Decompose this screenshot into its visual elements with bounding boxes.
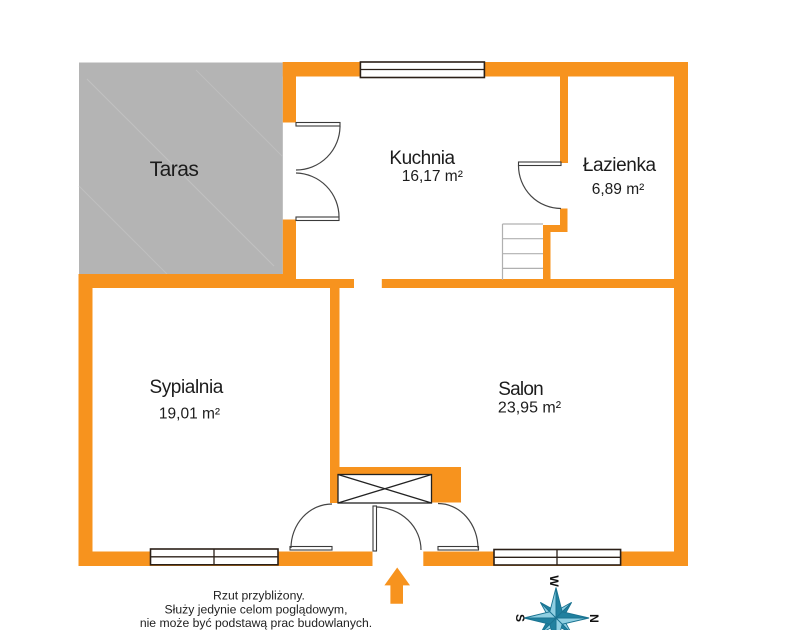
svg-text:23,95 m²: 23,95 m² — [498, 400, 562, 417]
svg-text:N: N — [587, 614, 601, 623]
svg-text:Sypialnia: Sypialnia — [149, 377, 223, 398]
svg-text:19,01 m²: 19,01 m² — [159, 406, 220, 423]
svg-text:Służy jedynie celom poglądowym: Służy jedynie celom poglądowym, — [165, 602, 348, 616]
svg-text:nie może być podstawą prac bud: nie może być podstawą prac budowlanych. — [140, 616, 372, 630]
svg-text:6,89 m²: 6,89 m² — [592, 181, 645, 198]
svg-text:S: S — [513, 614, 527, 622]
svg-text:Kuchnia: Kuchnia — [389, 148, 455, 169]
svg-text:16,17 m²: 16,17 m² — [402, 168, 463, 185]
svg-text:Łazienka: Łazienka — [583, 155, 657, 176]
svg-text:Taras: Taras — [150, 158, 199, 181]
svg-text:Rzut przybliżony.: Rzut przybliżony. — [213, 588, 305, 602]
svg-text:W: W — [547, 575, 561, 587]
svg-text:Salon: Salon — [498, 379, 543, 400]
